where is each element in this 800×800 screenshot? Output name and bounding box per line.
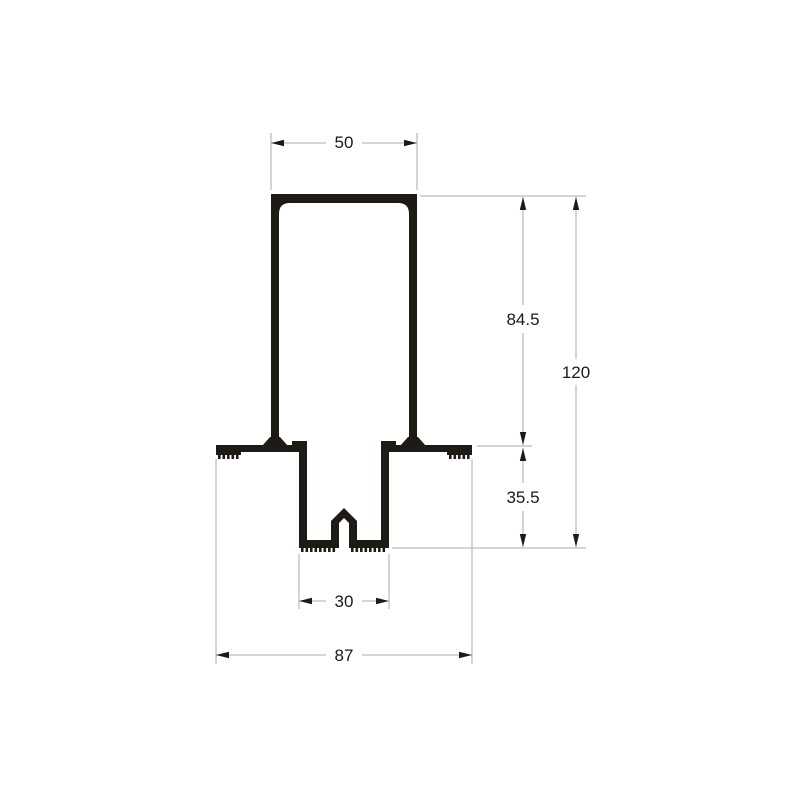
dim-label-upper-height: 84.5 xyxy=(506,310,539,329)
dim-base-width: 87 xyxy=(216,646,472,665)
arrow-87-right xyxy=(459,652,472,658)
right-serrated-pad xyxy=(447,452,472,455)
dim-total-height: 120 xyxy=(562,197,590,547)
arrow-355-down xyxy=(520,534,526,547)
channel-left-wall xyxy=(299,441,307,548)
dim-top-width: 50 xyxy=(271,133,417,152)
channel-right-lip xyxy=(381,441,396,446)
arrow-87-left xyxy=(216,652,229,658)
left-flange xyxy=(216,445,300,452)
dim-label-lower-depth: 35.5 xyxy=(506,488,539,507)
dim-label-channel-width: 30 xyxy=(335,592,354,611)
left-serrated-pad xyxy=(216,452,241,455)
arrow-355-up xyxy=(520,448,526,461)
dim-lower-depth: 35.5 xyxy=(506,448,539,547)
arrow-50-right xyxy=(404,140,417,146)
left-wall-fillet xyxy=(262,437,288,446)
arrow-30-left xyxy=(299,598,312,604)
dim-label-top-width: 50 xyxy=(335,133,354,152)
tube-outline xyxy=(271,194,417,446)
dim-upper-height: 84.5 xyxy=(506,197,539,445)
arrow-120-down xyxy=(573,534,579,547)
profile-shape xyxy=(216,194,472,550)
dim-channel-width: 30 xyxy=(299,592,389,611)
arrow-120-up xyxy=(573,197,579,210)
screw-boss xyxy=(331,508,357,548)
arrow-845-up xyxy=(520,197,526,210)
dim-label-total-height: 120 xyxy=(562,363,590,382)
channel-left-lip xyxy=(292,441,307,446)
right-wall-fillet xyxy=(400,437,426,446)
arrow-845-down xyxy=(520,432,526,445)
channel-right-wall xyxy=(381,441,389,548)
dim-label-base-width: 87 xyxy=(335,646,354,665)
right-flange xyxy=(388,445,472,452)
arrow-50-left xyxy=(271,140,284,146)
arrow-30-right xyxy=(376,598,389,604)
profile-drawing: 50 84.5 120 35.5 30 87 xyxy=(0,0,800,800)
